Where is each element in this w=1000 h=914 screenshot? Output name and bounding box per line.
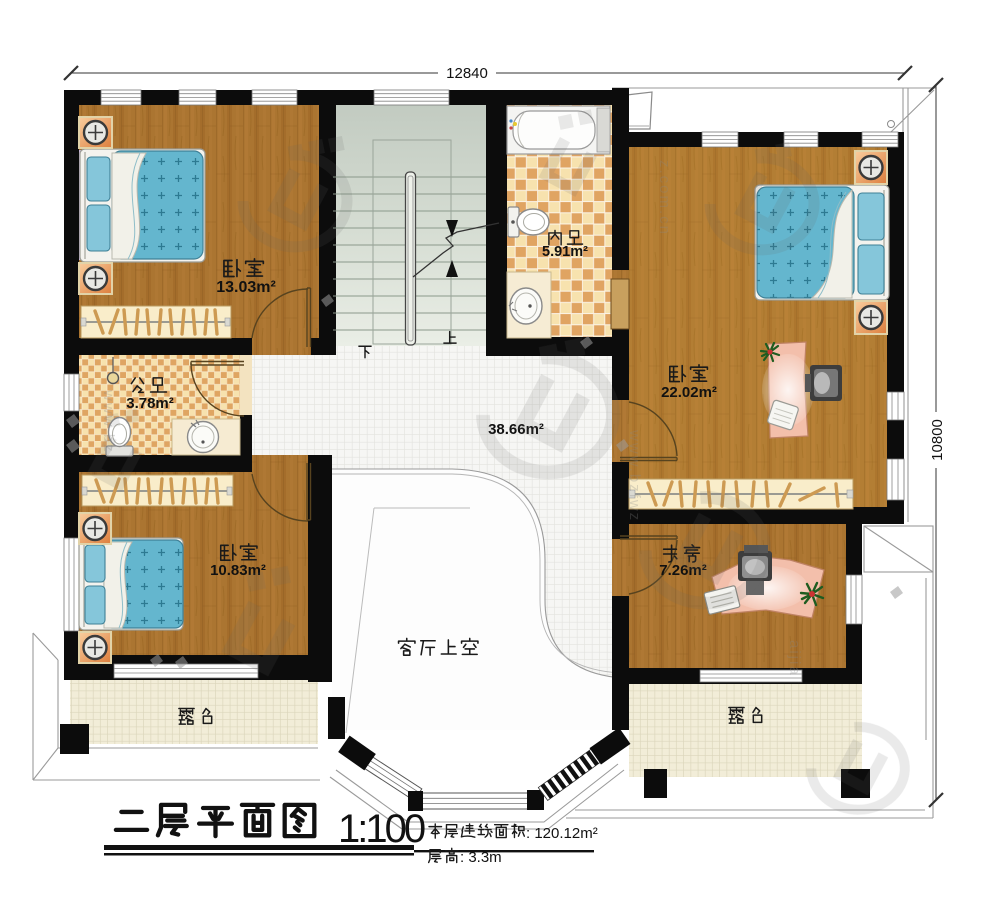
svg-text:aijia: aijia <box>786 640 803 677</box>
svg-text:z.com.cn: z.com.cn <box>656 160 673 236</box>
svg-text:1:100: 1:100 <box>338 807 425 851</box>
svg-text:10800: 10800 <box>929 419 946 461</box>
svg-text:: 3.3m: : 3.3m <box>460 849 502 866</box>
svg-text:5.91m²: 5.91m² <box>542 244 588 260</box>
svg-text:: 120.12m²: : 120.12m² <box>526 825 598 842</box>
svg-text:12840: 12840 <box>446 65 488 82</box>
svg-text:22.02m²: 22.02m² <box>661 384 717 401</box>
svg-text:www.bzfwz: www.bzfwz <box>626 429 643 522</box>
svg-text:13.03m²: 13.03m² <box>216 279 276 296</box>
svg-text:www.bz: www.bz <box>100 389 117 454</box>
